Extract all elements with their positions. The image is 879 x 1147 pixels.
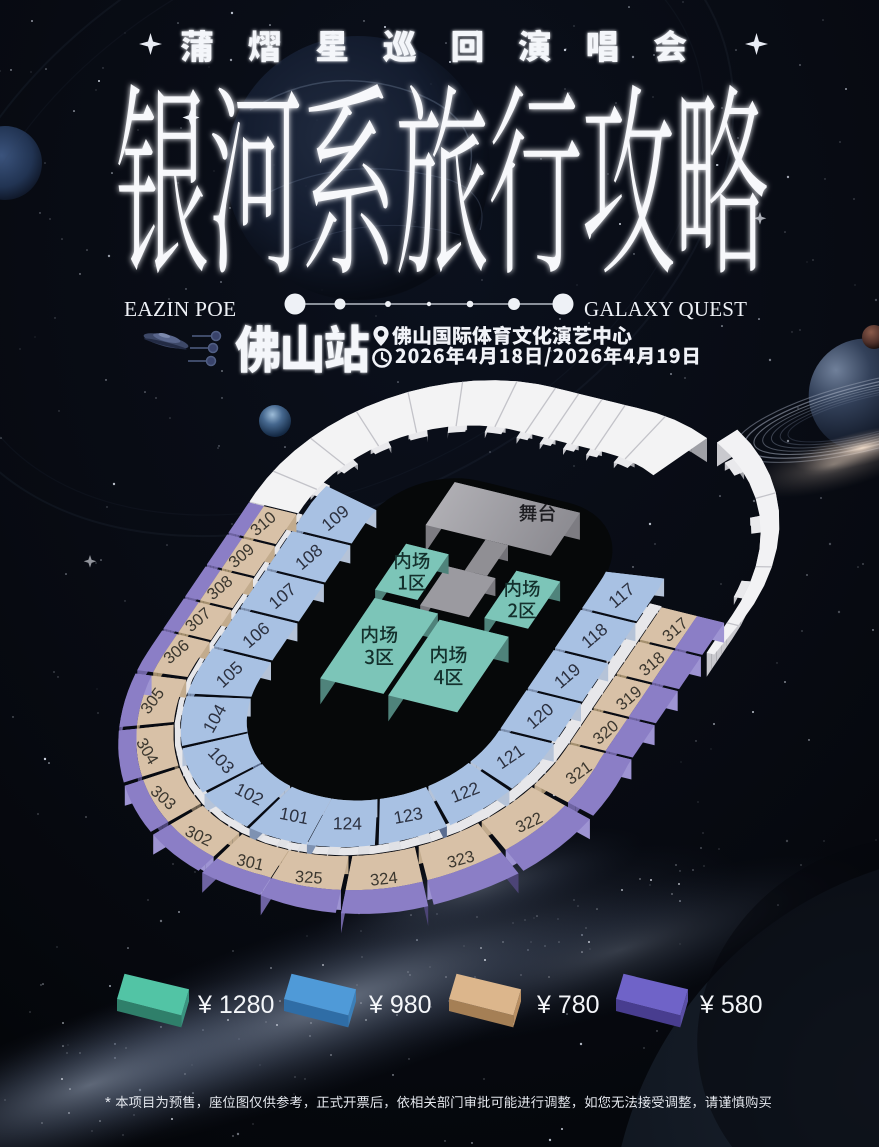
svg-text:324: 324	[369, 869, 398, 890]
svg-text:EAZIN POE: EAZIN POE	[124, 297, 236, 321]
svg-text:*: *	[105, 1094, 111, 1111]
svg-text:¥ 780: ¥ 780	[536, 991, 600, 1019]
svg-text:GALAXY QUEST: GALAXY QUEST	[584, 297, 747, 321]
svg-text:¥ 1280: ¥ 1280	[197, 991, 274, 1019]
svg-text:¥ 580: ¥ 580	[699, 991, 763, 1019]
svg-text:325: 325	[294, 868, 323, 888]
svg-text:124: 124	[333, 813, 363, 833]
svg-text:¥ 980: ¥ 980	[368, 991, 432, 1019]
